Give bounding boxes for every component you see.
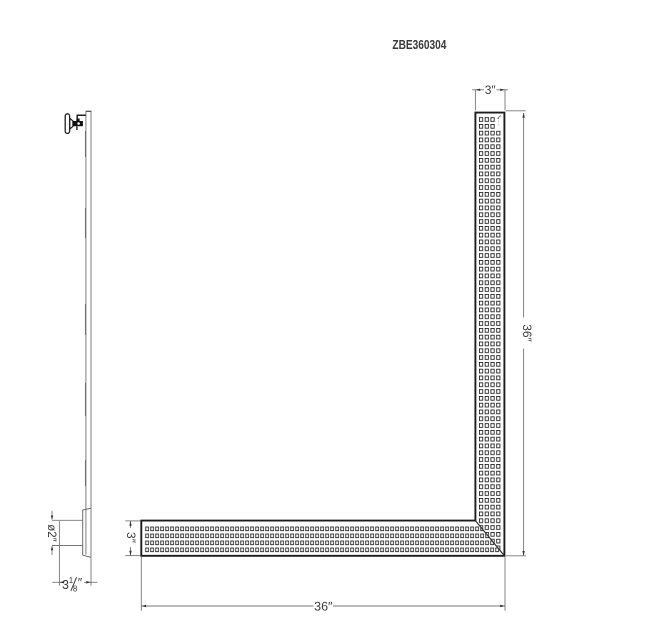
svg-text:ø2″: ø2″ (45, 524, 57, 542)
svg-text:″: ″ (78, 576, 83, 590)
svg-text:ZBE360304: ZBE360304 (392, 37, 447, 52)
svg-text:36″: 36″ (314, 599, 333, 613)
svg-text:36″: 36″ (520, 324, 534, 342)
svg-text:3″: 3″ (124, 532, 138, 544)
svg-text:3″: 3″ (485, 83, 497, 97)
